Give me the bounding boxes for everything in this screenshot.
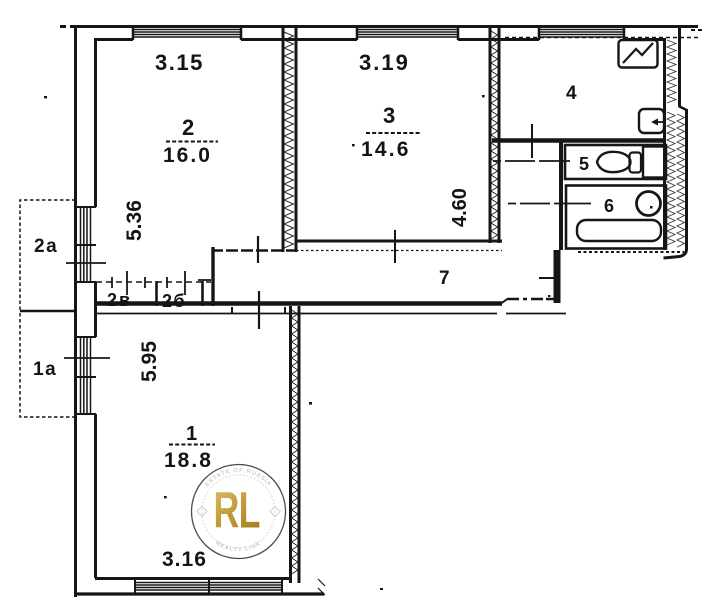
svg-text:2а: 2а [34,236,58,257]
svg-text:7: 7 [439,268,450,289]
svg-text:16.0: 16.0 [163,144,212,167]
svg-text:4.60: 4.60 [449,188,471,227]
svg-text:5.95: 5.95 [138,341,161,382]
svg-text:3.16: 3.16 [162,548,207,571]
svg-text:3: 3 [383,103,395,128]
svg-text:5: 5 [579,154,589,174]
svg-text:2в: 2в [107,290,132,310]
svg-text:RL: RL [214,482,260,539]
svg-text:6: 6 [604,196,614,216]
svg-text:18.8: 18.8 [164,449,213,472]
svg-text:2б: 2б [162,291,186,311]
svg-text:5.36: 5.36 [123,200,146,241]
svg-text:3.15: 3.15 [155,50,204,75]
svg-text:3.19: 3.19 [359,50,410,75]
svg-text:1а: 1а [33,359,57,380]
svg-text:4: 4 [566,83,577,104]
svg-text:1: 1 [186,423,197,445]
svg-text:14.6: 14.6 [361,138,411,161]
svg-text:2: 2 [182,115,194,140]
